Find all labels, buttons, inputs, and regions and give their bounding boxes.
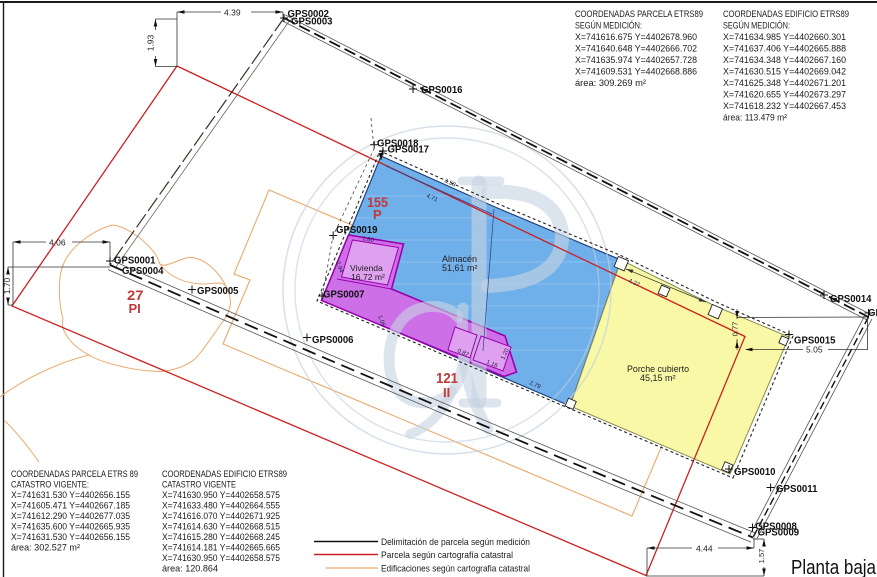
svg-text:P: P <box>373 207 382 222</box>
svg-text:CATASTRO VIGENTE: CATASTRO VIGENTE <box>162 479 236 490</box>
svg-text:Planta baja: Planta baja <box>791 557 877 577</box>
svg-text:GPS0011: GPS0011 <box>776 483 818 495</box>
svg-text:1.57: 1.57 <box>757 549 766 564</box>
svg-text:GPS0005: GPS0005 <box>197 285 239 297</box>
svg-text:GPS0003: GPS0003 <box>291 16 333 28</box>
svg-text:GPS0013: GPS0013 <box>868 307 877 319</box>
svg-text:PI: PI <box>129 301 141 316</box>
svg-text:Edificaciones según cartografi: Edificaciones según cartografia catastra… <box>381 563 530 574</box>
svg-text:II: II <box>443 385 450 400</box>
svg-text:1.70: 1.70 <box>2 277 12 294</box>
svg-text:4.39: 4.39 <box>224 8 241 18</box>
svg-text:4.44: 4.44 <box>696 544 713 554</box>
svg-text:SEGÚN MEDICIÓN:: SEGÚN MEDICIÓN: <box>723 20 790 31</box>
svg-text:X=741637.406 Y=4402665.888: X=741637.406 Y=4402665.888 <box>723 43 846 54</box>
svg-text:área: 120.864: área: 120.864 <box>162 563 218 574</box>
svg-text:16,72 m²: 16,72 m² <box>351 272 385 282</box>
svg-text:X=741640.648 Y=4402666.702: X=741640.648 Y=4402666.702 <box>575 43 697 54</box>
svg-text:X=741635.600 Y=4402665.935: X=741635.600 Y=4402665.935 <box>11 521 130 532</box>
svg-text:51,61 m²: 51,61 m² <box>442 263 478 273</box>
svg-text:Delimitación de parcela según: Delimitación de parcela según medición <box>381 536 530 547</box>
svg-text:X=741618.232 Y=4402667.453: X=741618.232 Y=4402667.453 <box>723 100 846 111</box>
svg-text:X=741633.480 Y=4402664.555: X=741633.480 Y=4402664.555 <box>162 500 280 511</box>
svg-text:SEGÚN MEDICIÓN:: SEGÚN MEDICIÓN: <box>575 20 642 31</box>
svg-text:X=741605.471 Y=4402667.185: X=741605.471 Y=4402667.185 <box>11 500 130 511</box>
svg-text:área: 309.269 m²: área: 309.269 m² <box>575 77 646 88</box>
svg-text:X=741614.630 Y=4402668.515: X=741614.630 Y=4402668.515 <box>162 521 280 532</box>
svg-text:GPS0014: GPS0014 <box>830 293 872 305</box>
svg-text:COORDENADAS PARCELA ETRS89: COORDENADAS PARCELA ETRS89 <box>575 8 703 19</box>
svg-text:GPS0016: GPS0016 <box>421 84 463 96</box>
svg-text:X=741609.531 Y=4402668.886: X=741609.531 Y=4402668.886 <box>575 66 697 77</box>
svg-text:4.06: 4.06 <box>49 238 66 248</box>
svg-text:área: 302.527 m²: área: 302.527 m² <box>11 542 80 553</box>
svg-text:X=741630.950 Y=4402658.575: X=741630.950 Y=4402658.575 <box>162 552 280 563</box>
svg-text:GPS0019: GPS0019 <box>336 224 378 236</box>
svg-text:X=741630.950 Y=4402658.575: X=741630.950 Y=4402658.575 <box>162 489 280 500</box>
svg-text:X=741635.974 Y=4402657.728: X=741635.974 Y=4402657.728 <box>575 54 697 65</box>
svg-text:X=741625.348 Y=4402671.201: X=741625.348 Y=4402671.201 <box>723 77 846 88</box>
svg-text:X=741631.530 Y=4402656.155: X=741631.530 Y=4402656.155 <box>11 531 130 542</box>
svg-text:área: 113.479 m²: área: 113.479 m² <box>723 112 787 123</box>
svg-text:CATASTRO VIGENTE:: CATASTRO VIGENTE: <box>11 479 89 490</box>
svg-text:GPS0007: GPS0007 <box>323 289 365 301</box>
svg-text:X=741612.290 Y=4402677.035: X=741612.290 Y=4402677.035 <box>11 510 130 521</box>
svg-text:0.77: 0.77 <box>731 322 740 337</box>
svg-text:COORDENADAS EDIFICIO ETRS89: COORDENADAS EDIFICIO ETRS89 <box>162 468 287 479</box>
svg-text:GPS0015: GPS0015 <box>794 335 836 347</box>
svg-text:X=741631.530 Y=4402656.155: X=741631.530 Y=4402656.155 <box>11 489 130 500</box>
svg-text:GPS0004: GPS0004 <box>122 265 164 277</box>
svg-text:X=741634.985 Y=4402660.301: X=741634.985 Y=4402660.301 <box>723 31 846 42</box>
svg-text:GPS0009: GPS0009 <box>758 527 800 539</box>
svg-text:COORDENADAS EDIFICIO ETRS89: COORDENADAS EDIFICIO ETRS89 <box>723 8 849 19</box>
svg-text:GPS0017: GPS0017 <box>388 144 430 156</box>
svg-text:Parcela según cartografía cata: Parcela según cartografía catastral <box>381 549 513 560</box>
svg-text:X=741634.348 Y=4402667.160: X=741634.348 Y=4402667.160 <box>723 54 846 65</box>
svg-text:GPS0010: GPS0010 <box>734 466 776 478</box>
svg-text:X=741614.181 Y=4402665.665: X=741614.181 Y=4402665.665 <box>162 542 280 553</box>
svg-text:45,15 m²: 45,15 m² <box>640 373 676 383</box>
svg-text:X=741616.675 Y=4402678.960: X=741616.675 Y=4402678.960 <box>575 31 697 42</box>
svg-text:COORDENADAS PARCELA ETRS 89: COORDENADAS PARCELA ETRS 89 <box>11 468 138 479</box>
svg-text:X=741630.515 Y=4402669.042: X=741630.515 Y=4402669.042 <box>723 66 846 77</box>
svg-text:X=741620.655 Y=4402673.297: X=741620.655 Y=4402673.297 <box>723 89 846 100</box>
svg-text:X=741616.070 Y=4402671.925: X=741616.070 Y=4402671.925 <box>162 510 280 521</box>
svg-text:GPS0006: GPS0006 <box>312 334 354 346</box>
svg-text:1.93: 1.93 <box>146 34 156 51</box>
svg-text:X=741615.280 Y=4402668.245: X=741615.280 Y=4402668.245 <box>162 531 280 542</box>
